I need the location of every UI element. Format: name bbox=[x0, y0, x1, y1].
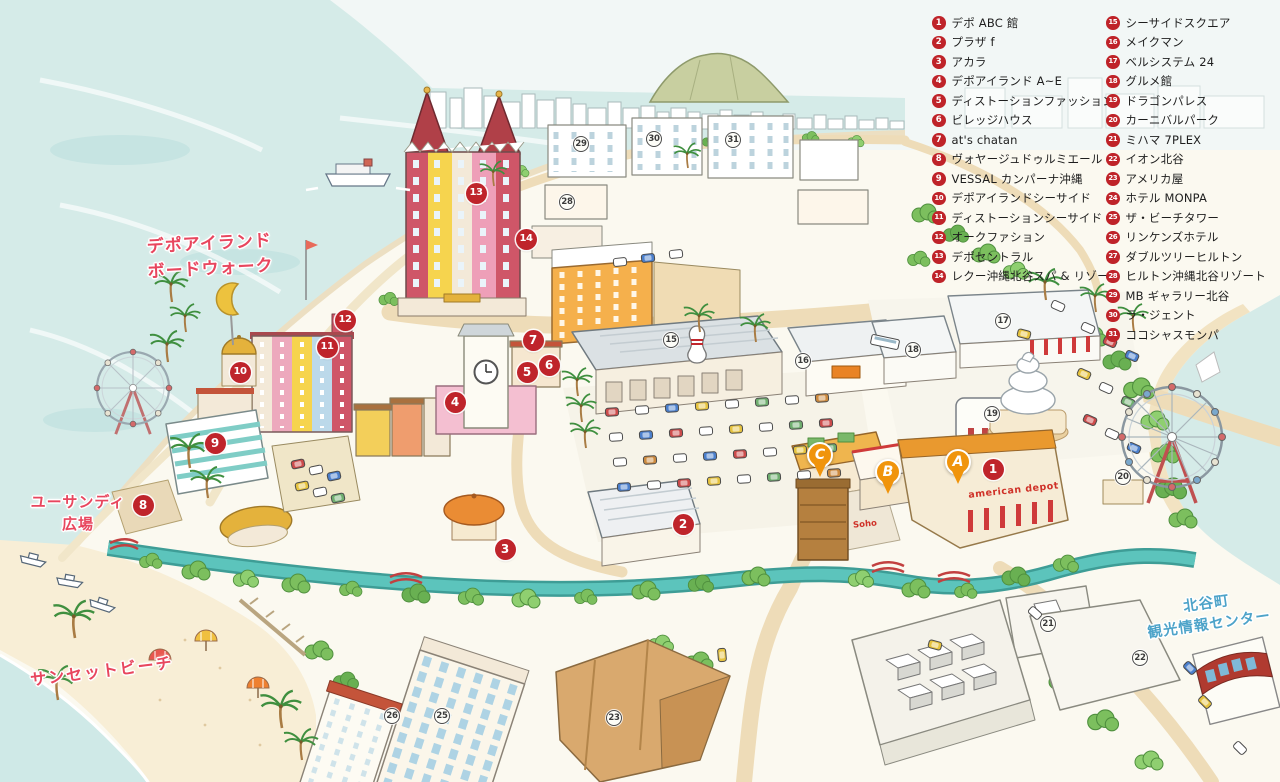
legend-item-4: 4デポアイランド A~E bbox=[932, 72, 1120, 92]
legend-item-29: 29MB ギャラリー北谷 bbox=[1106, 286, 1266, 306]
legend-item-label: ディストーションファッション bbox=[952, 93, 1114, 109]
map-marker-6[interactable]: 6 bbox=[539, 355, 560, 376]
legend-item-label: ベルシステム 24 bbox=[1126, 54, 1215, 70]
map-pin-C[interactable]: C bbox=[807, 442, 833, 468]
legend-number-badge: 22 bbox=[1106, 153, 1120, 167]
map-marker-9[interactable]: 9 bbox=[205, 433, 226, 454]
legend-item-20: 20カーニバルパーク bbox=[1106, 111, 1266, 131]
legend-item-label: シーサイドスクエア bbox=[1126, 15, 1231, 31]
map-marker-10[interactable]: 10 bbox=[230, 362, 251, 383]
legend-item-9: 9VESSAL カンパーナ沖縄 bbox=[932, 169, 1120, 189]
map-marker-31[interactable]: 31 bbox=[725, 132, 741, 148]
label-line: ユーサンディ bbox=[31, 493, 126, 511]
info-center-building bbox=[1193, 637, 1280, 724]
map-marker-4[interactable]: 4 bbox=[445, 392, 466, 413]
legend-number-badge: 24 bbox=[1106, 192, 1120, 206]
legend-item-17: 17ベルシステム 24 bbox=[1106, 52, 1266, 72]
legend-item-label: ホテル MONPA bbox=[1126, 190, 1208, 206]
legend-number-badge: 23 bbox=[1106, 172, 1120, 186]
legend-number-badge: 26 bbox=[1106, 231, 1120, 245]
legend-number-badge: 10 bbox=[932, 192, 946, 206]
legend-number-badge: 27 bbox=[1106, 250, 1120, 264]
map-marker-25[interactable]: 25 bbox=[434, 708, 450, 724]
label-depot-island-boardwalk: デポアイランド ボードウォーク bbox=[119, 227, 301, 286]
legend-item-18: 18グルメ館 bbox=[1106, 72, 1266, 92]
map-marker-29[interactable]: 29 bbox=[573, 136, 589, 152]
legend-number-badge: 3 bbox=[932, 55, 946, 69]
legend-item-23: 23アメリカ屋 bbox=[1106, 169, 1266, 189]
legend-item-label: at's chatan bbox=[952, 133, 1018, 147]
legend-item-2: 2プラザ f bbox=[932, 33, 1120, 53]
label-line: 広場 bbox=[62, 515, 94, 533]
akara-pavilion bbox=[444, 494, 504, 541]
map-marker-17[interactable]: 17 bbox=[995, 313, 1011, 329]
legend-item-24: 24ホテル MONPA bbox=[1106, 189, 1266, 209]
label-yuusandy-plaza: ユーサンディ 広場 bbox=[22, 492, 134, 536]
legend-item-label: ミハマ 7PLEX bbox=[1126, 132, 1202, 148]
legend-number-badge: 19 bbox=[1106, 94, 1120, 108]
legend-item-11: 11ディストーションシーサイド bbox=[932, 208, 1120, 228]
legend-item-label: オークファション bbox=[952, 229, 1046, 245]
map-marker-2[interactable]: 2 bbox=[673, 514, 694, 535]
legend-number-badge: 5 bbox=[932, 94, 946, 108]
map-marker-18[interactable]: 18 bbox=[905, 342, 921, 358]
map-marker-14[interactable]: 14 bbox=[516, 229, 537, 250]
map-marker-1[interactable]: 1 bbox=[983, 459, 1004, 480]
map-marker-21[interactable]: 21 bbox=[1040, 616, 1056, 632]
legend-number-badge: 28 bbox=[1106, 270, 1120, 284]
legend-item-label: メイクマン bbox=[1126, 34, 1184, 50]
legend-number-badge: 17 bbox=[1106, 55, 1120, 69]
legend-item-label: プラザ f bbox=[952, 34, 995, 50]
legend-item-label: グルメ館 bbox=[1126, 73, 1173, 89]
map-marker-20[interactable]: 20 bbox=[1115, 469, 1131, 485]
map-marker-12[interactable]: 12 bbox=[335, 310, 356, 331]
map-marker-7[interactable]: 7 bbox=[523, 330, 544, 351]
legend-number-badge: 11 bbox=[932, 211, 946, 225]
legend-item-label: デポアイランド A~E bbox=[952, 73, 1063, 89]
legend-item-label: ビレッジハウス bbox=[952, 112, 1033, 128]
map-pin-A[interactable]: A bbox=[945, 449, 971, 475]
map-pin-B[interactable]: B bbox=[875, 459, 901, 485]
legend-number-badge: 7 bbox=[932, 133, 946, 147]
map-marker-13[interactable]: 13 bbox=[466, 183, 487, 204]
legend-item-6: 6ビレッジハウス bbox=[932, 111, 1120, 131]
map-marker-15[interactable]: 15 bbox=[663, 332, 679, 348]
legend-item-label: アメリカ屋 bbox=[1126, 171, 1184, 187]
legend-number-badge: 16 bbox=[1106, 36, 1120, 50]
legend-item-25: 25ザ・ビーチタワー bbox=[1106, 208, 1266, 228]
legend-item-label: ドラゴンパレス bbox=[1126, 93, 1208, 109]
legend-item-10: 10デポアイランドシーサイド bbox=[932, 189, 1120, 209]
legend-number-badge: 31 bbox=[1106, 328, 1120, 342]
legend-item-7: 7at's chatan bbox=[932, 130, 1120, 150]
legend-column-right: 15シーサイドスクエア16メイクマン17ベルシステム 2418グルメ館19ドラゴ… bbox=[1106, 13, 1266, 345]
legend-item-19: 19ドラゴンパレス bbox=[1106, 91, 1266, 111]
legend-item-label: ダブルツリーヒルトン bbox=[1126, 249, 1243, 265]
legend-number-badge: 14 bbox=[932, 270, 946, 284]
legend-item-label: アカラ bbox=[952, 54, 987, 70]
map-marker-3[interactable]: 3 bbox=[495, 539, 516, 560]
map-marker-11[interactable]: 11 bbox=[317, 337, 338, 358]
legend-number-badge: 2 bbox=[932, 36, 946, 50]
legend-column-left: 1デポ ABC 館2プラザ f3アカラ4デポアイランド A~E5ディストーション… bbox=[932, 13, 1120, 286]
legend-item-label: イオン北谷 bbox=[1126, 151, 1185, 167]
legend-item-label: ヴォヤージュドゥルミエール bbox=[952, 151, 1103, 167]
legend-item-8: 8ヴォヤージュドゥルミエール bbox=[932, 150, 1120, 170]
legend-item-label: デポ ABC 館 bbox=[952, 15, 1019, 31]
legend-item-27: 27ダブルツリーヒルトン bbox=[1106, 247, 1266, 267]
legend-number-badge: 25 bbox=[1106, 211, 1120, 225]
legend-item-5: 5ディストーションファッション bbox=[932, 91, 1120, 111]
legend-number-badge: 8 bbox=[932, 153, 946, 167]
label-line: デポアイランド bbox=[146, 231, 272, 258]
legend-item-label: ココシャスモンパ bbox=[1126, 327, 1220, 343]
map-marker-5[interactable]: 5 bbox=[517, 362, 538, 383]
map-marker-23[interactable]: 23 bbox=[606, 710, 622, 726]
legend-number-badge: 13 bbox=[932, 250, 946, 264]
legend-item-label: ディストーションシーサイド bbox=[952, 210, 1103, 226]
legend-item-label: ラ・ジェント bbox=[1126, 307, 1196, 323]
illustrated-map: american depot Soho デポアイランド ボードウォーク ユーサン… bbox=[0, 0, 1280, 782]
legend-item-15: 15シーサイドスクエア bbox=[1106, 13, 1266, 33]
legend-item-1: 1デポ ABC 館 bbox=[932, 13, 1120, 33]
legend-item-label: レクー沖縄北谷スパ & リゾート bbox=[952, 268, 1121, 284]
map-marker-19[interactable]: 19 bbox=[984, 406, 1000, 422]
label-line: ボードウォーク bbox=[147, 255, 274, 282]
soho-sign: Soho bbox=[853, 519, 878, 531]
map-marker-8[interactable]: 8 bbox=[133, 495, 154, 516]
map-marker-26[interactable]: 26 bbox=[384, 708, 400, 724]
legend-item-label: デポセントラル bbox=[952, 249, 1034, 265]
legend-item-14: 14レクー沖縄北谷スパ & リゾート bbox=[932, 267, 1120, 287]
legend-number-badge: 9 bbox=[932, 172, 946, 186]
legend-number-badge: 29 bbox=[1106, 289, 1120, 303]
legend-number-badge: 20 bbox=[1106, 114, 1120, 128]
legend-item-28: 28ヒルトン沖縄北谷リゾート bbox=[1106, 267, 1266, 287]
map-marker-28[interactable]: 28 bbox=[559, 194, 575, 210]
legend-item-label: ザ・ビーチタワー bbox=[1126, 210, 1220, 226]
legend-number-badge: 21 bbox=[1106, 133, 1120, 147]
map-marker-16[interactable]: 16 bbox=[795, 353, 811, 369]
legend-item-30: 30ラ・ジェント bbox=[1106, 306, 1266, 326]
legend-number-badge: 4 bbox=[932, 75, 946, 89]
legend-number-badge: 12 bbox=[932, 231, 946, 245]
legend-item-12: 12オークファション bbox=[932, 228, 1120, 248]
legend-item-16: 16メイクマン bbox=[1106, 33, 1266, 53]
legend-item-label: リンケンズホテル bbox=[1126, 229, 1219, 245]
legend-item-label: ヒルトン沖縄北谷リゾート bbox=[1126, 268, 1266, 284]
map-marker-30[interactable]: 30 bbox=[646, 131, 662, 147]
legend-number-badge: 1 bbox=[932, 16, 946, 30]
legend-item-3: 3アカラ bbox=[932, 52, 1120, 72]
legend-item-label: MB ギャラリー北谷 bbox=[1126, 288, 1230, 304]
legend-item-21: 21ミハマ 7PLEX bbox=[1106, 130, 1266, 150]
legend-item-22: 22イオン北谷 bbox=[1106, 150, 1266, 170]
map-marker-22[interactable]: 22 bbox=[1132, 650, 1148, 666]
legend-number-badge: 15 bbox=[1106, 16, 1120, 30]
legend-number-badge: 18 bbox=[1106, 75, 1120, 89]
legend-item-31: 31ココシャスモンパ bbox=[1106, 325, 1266, 345]
legend-item-label: VESSAL カンパーナ沖縄 bbox=[952, 171, 1083, 187]
legend-item-label: デポアイランドシーサイド bbox=[952, 190, 1092, 206]
legend-number-badge: 6 bbox=[932, 114, 946, 128]
legend-item-26: 26リンケンズホテル bbox=[1106, 228, 1266, 248]
legend-item-13: 13デポセントラル bbox=[932, 247, 1120, 267]
label-line: 北谷町 bbox=[1182, 593, 1230, 615]
legend-number-badge: 30 bbox=[1106, 309, 1120, 323]
legend-item-label: カーニバルパーク bbox=[1126, 112, 1220, 128]
